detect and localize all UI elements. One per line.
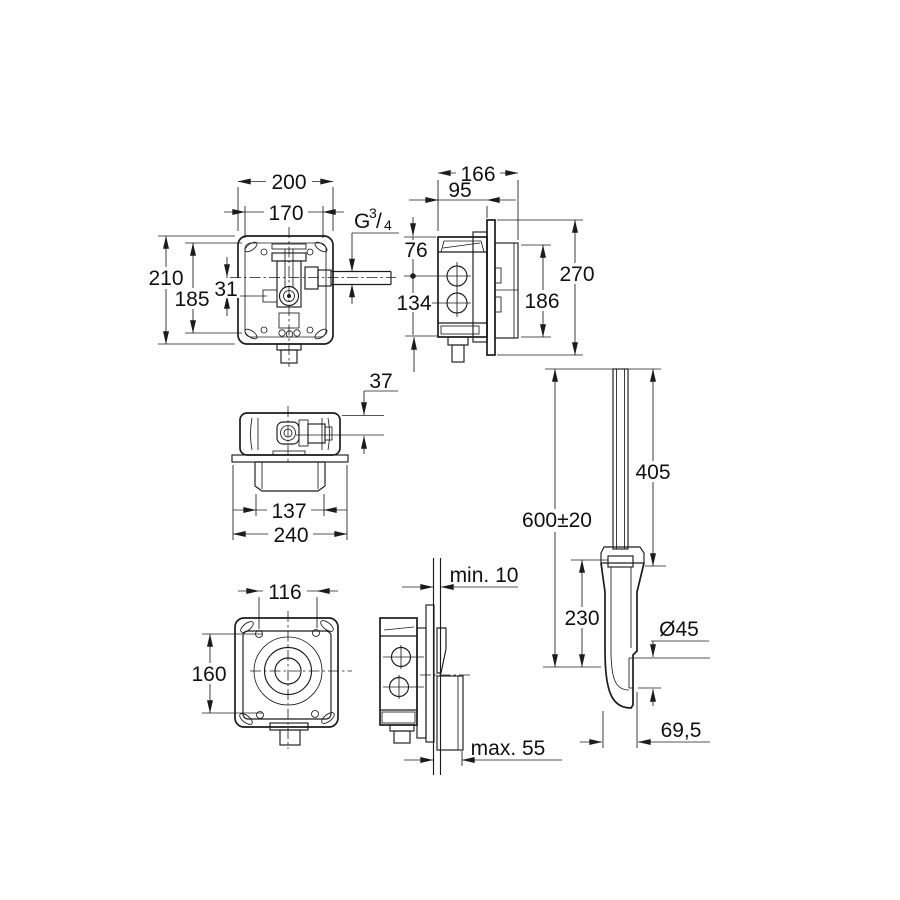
dim-label-185: 185 [174, 288, 209, 311]
dim-label-116: 116 [268, 581, 301, 604]
view-top-installation-box: 37 137 240 [232, 370, 398, 547]
flush-pipe [613, 369, 628, 549]
dim-wall-max-depth: max. 55 [404, 737, 562, 766]
clamp-ring [608, 556, 633, 567]
dim-label-200: 200 [271, 171, 306, 194]
flush-valve-mechanism [263, 244, 391, 363]
thread-label-den: 4 [384, 217, 392, 233]
view-wall-section: min. 10 max. 55 [380, 558, 562, 775]
dim-label-160: 160 [191, 663, 226, 686]
mounting-plate-top [232, 455, 348, 462]
corner-mounting-slots [243, 240, 328, 340]
dim-recess-width: 137 [233, 494, 347, 523]
dim-label-31: 31 [214, 278, 237, 301]
valve-top-view [277, 420, 332, 446]
dim-lower-length: 230 [561, 560, 608, 667]
view-flush-pipe: 600±20 405 230 Ø45 [522, 369, 710, 748]
dim-label-170: 170 [268, 202, 303, 225]
technical-drawing-canvas: 200 170 210 185 [0, 0, 900, 900]
dim-label-600: 600±20 [522, 509, 592, 532]
dim-label-240: 240 [273, 524, 308, 547]
dim-label-405: 405 [635, 461, 670, 484]
dim-box-height: 186 [521, 245, 561, 337]
dim-label-230: 230 [564, 607, 599, 630]
dim-hole-offsets: 76 134 [396, 217, 437, 372]
dim-label-37: 37 [369, 370, 392, 393]
recess-box-top [255, 462, 325, 491]
dim-label-95: 95 [448, 179, 471, 202]
dim-outlet-diameter: Ø45 [634, 618, 710, 706]
dim-label-max55: max. 55 [471, 737, 546, 760]
dim-upper-length: 405 [632, 369, 674, 566]
view-side-installation-box: 166 95 76 134 270 [396, 163, 597, 372]
view-front-installation-box: 200 170 210 185 [147, 171, 399, 367]
valve-dome-side [437, 628, 446, 673]
corner-slots-cover [238, 619, 336, 727]
outlet-stub-flange [448, 337, 468, 345]
dim-front-offset: 37 [296, 370, 398, 454]
dim-depth-front: 95 [409, 179, 516, 218]
flush-valve-dimension-drawing: 200 170 210 185 [0, 0, 900, 900]
dim-label-76: 76 [404, 239, 427, 262]
dim-wall-min-depth: min. 10 [402, 564, 518, 587]
dim-label-134: 134 [396, 292, 431, 315]
thread-label-g: G [354, 210, 370, 233]
supply-holes-wall-view [383, 645, 424, 699]
elbow-body [601, 563, 644, 708]
dim-outlet-offset: 69,5 [580, 692, 710, 748]
dim-label-186: 186 [524, 290, 559, 313]
dim-label-270: 270 [559, 263, 594, 286]
mounting-plate-side [426, 605, 434, 742]
dim-label-d45: Ø45 [659, 618, 699, 641]
thread-label-slash: / [376, 210, 382, 233]
dim-axis-offset: 31 [213, 257, 267, 316]
dim-label-210: 210 [148, 267, 183, 290]
dim-label-137: 137 [271, 500, 306, 523]
dim-thread-size: G 3 / 4 [352, 205, 399, 304]
outlet-stub [452, 345, 464, 362]
view-front-cover: 116 160 [190, 581, 352, 749]
dim-screw-height: 160 [190, 634, 263, 713]
dim-label-695: 69,5 [661, 719, 702, 742]
dim-hole-spacing: 170 [224, 202, 344, 238]
dim-label-min10: min. 10 [450, 564, 519, 587]
dim-plate-height: 270 [497, 220, 597, 355]
